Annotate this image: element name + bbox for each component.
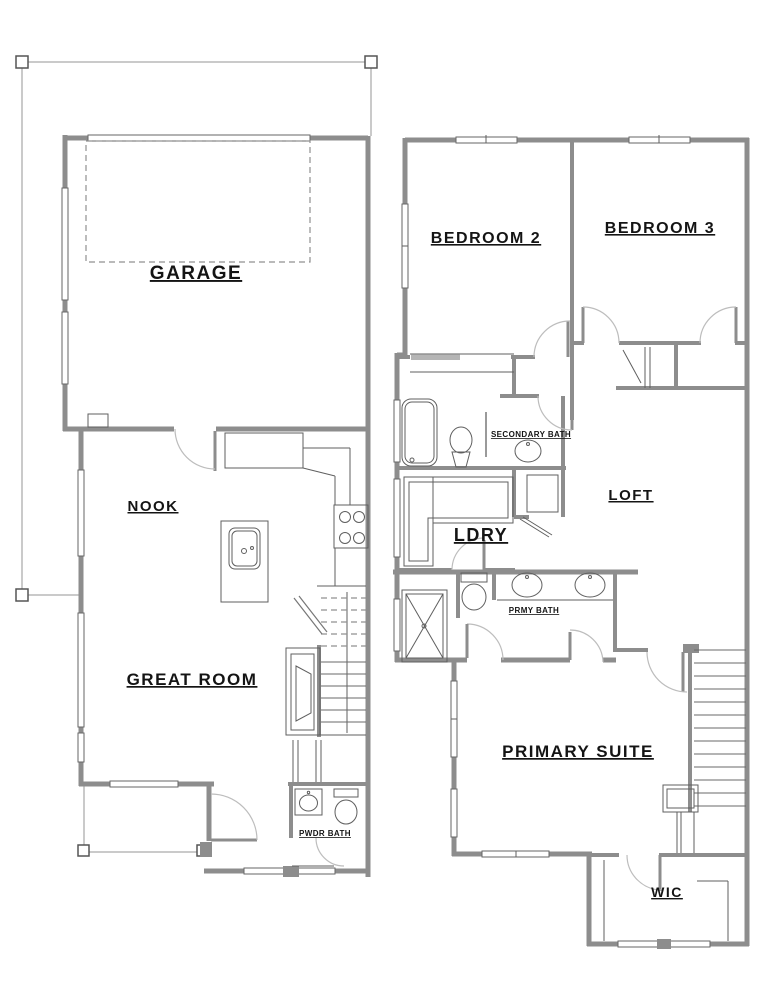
room-label-wic: WIC bbox=[651, 884, 683, 900]
range-cooktop-icon bbox=[334, 505, 368, 548]
toilet-icon bbox=[450, 427, 472, 467]
toilet-icon bbox=[461, 573, 487, 610]
wall-corner bbox=[200, 842, 212, 857]
room-label-garage: GARAGE bbox=[150, 263, 242, 284]
window bbox=[78, 733, 84, 762]
sink-icon bbox=[295, 789, 322, 815]
stair-rail-cap bbox=[683, 644, 699, 653]
refrigerator-icon bbox=[225, 433, 303, 468]
washer-dryer-icon bbox=[404, 477, 513, 566]
room-label-bedroom3: BEDROOM 3 bbox=[605, 220, 715, 237]
powder-bath-door bbox=[316, 838, 344, 866]
shower-icon bbox=[402, 590, 447, 662]
window-mullion bbox=[283, 866, 299, 877]
primary-bath-door-right bbox=[570, 630, 603, 662]
garage-door-header bbox=[88, 135, 310, 141]
window bbox=[110, 781, 178, 787]
window bbox=[62, 312, 68, 384]
bathtub-icon bbox=[402, 399, 437, 466]
hall-closet bbox=[623, 347, 650, 388]
room-label-ldry: LDRY bbox=[454, 525, 508, 545]
room-label-pwdr-bath: PWDR BATH bbox=[299, 829, 351, 838]
room-label-prmy-bath: PRMY BATH bbox=[509, 606, 559, 615]
window bbox=[394, 400, 400, 462]
window bbox=[244, 868, 284, 874]
sink-icon bbox=[515, 440, 541, 462]
garage-step bbox=[88, 414, 108, 427]
window bbox=[78, 613, 84, 727]
porch-post-icon bbox=[78, 845, 89, 856]
room-label-primary-suite: PRIMARY SUITE bbox=[502, 742, 654, 761]
kitchen-counters bbox=[221, 433, 368, 602]
room-label-great-room: GREAT ROOM bbox=[127, 670, 258, 689]
porch-post-icon bbox=[16, 589, 28, 601]
toilet-icon bbox=[334, 789, 358, 824]
staircase-first-floor bbox=[293, 586, 366, 782]
wic-shelves bbox=[604, 860, 728, 941]
window bbox=[298, 868, 335, 874]
exterior-walls bbox=[63, 135, 370, 877]
mech-closet bbox=[520, 475, 558, 537]
window bbox=[394, 599, 400, 651]
room-label-bedroom2: BEDROOM 2 bbox=[431, 230, 541, 247]
window bbox=[62, 188, 68, 300]
window bbox=[394, 479, 400, 557]
window bbox=[78, 470, 84, 556]
garage-door-dashed-outline bbox=[86, 141, 310, 262]
floor-plan-page: GARAGE NOOK GREAT ROOM PWDR BATH bbox=[0, 0, 773, 1000]
floor-plan-canvas: GARAGE NOOK GREAT ROOM PWDR BATH bbox=[0, 0, 773, 1000]
powder-bath-fixtures bbox=[292, 789, 358, 866]
island-sink-icon bbox=[221, 521, 268, 602]
room-label-loft: LOFT bbox=[608, 487, 653, 504]
porch-post-icon bbox=[365, 56, 377, 68]
porch-post-icon bbox=[16, 56, 28, 68]
second-floor-plan: BEDROOM 2 BEDROOM 3 SECONDARY BATH LOFT … bbox=[393, 135, 749, 949]
double-sink-icon bbox=[497, 573, 613, 600]
bedroom2-closet bbox=[410, 354, 514, 372]
first-floor-plan: GARAGE NOOK GREAT ROOM PWDR BATH bbox=[16, 56, 377, 877]
window-mullion bbox=[657, 939, 671, 949]
fireplace bbox=[286, 648, 320, 735]
room-label-secondary-bath: SECONDARY BATH bbox=[491, 430, 571, 439]
room-label-nook: NOOK bbox=[128, 498, 179, 515]
primary-bath-fixtures bbox=[402, 573, 613, 662]
window bbox=[451, 789, 457, 837]
staircase-second-floor bbox=[663, 650, 746, 853]
primary-bath-door-left bbox=[467, 624, 503, 660]
